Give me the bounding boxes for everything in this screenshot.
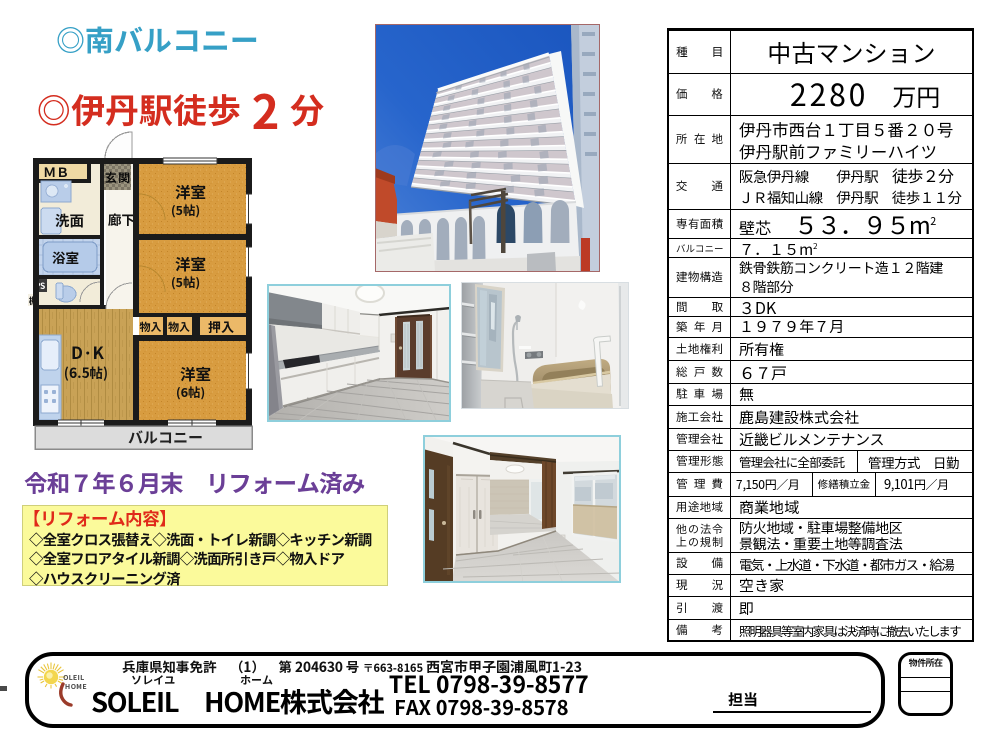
svg-text:玄関: 玄関 [105, 169, 130, 186]
svg-text:廊下: 廊下 [108, 209, 135, 229]
svg-text:押入: 押入 [208, 317, 234, 336]
svg-text:(6.5帖): (6.5帖) [64, 362, 108, 382]
svg-text:D·K: D·K [71, 340, 104, 364]
svg-text:(5帖): (5帖) [171, 272, 200, 291]
svg-text:HOME: HOME [65, 682, 88, 692]
svg-text:バルコニー: バルコニー [128, 427, 203, 448]
svg-text:物入: 物入 [167, 319, 190, 335]
svg-text:(5帖): (5帖) [171, 200, 200, 219]
svg-text:物入: 物入 [139, 319, 162, 335]
svg-text:(6帖): (6帖) [176, 382, 205, 401]
svg-text:洗面: 洗面 [55, 210, 84, 231]
svg-text:浴室: 浴室 [52, 247, 79, 267]
svg-text:ＭＢ: ＭＢ [43, 162, 69, 181]
